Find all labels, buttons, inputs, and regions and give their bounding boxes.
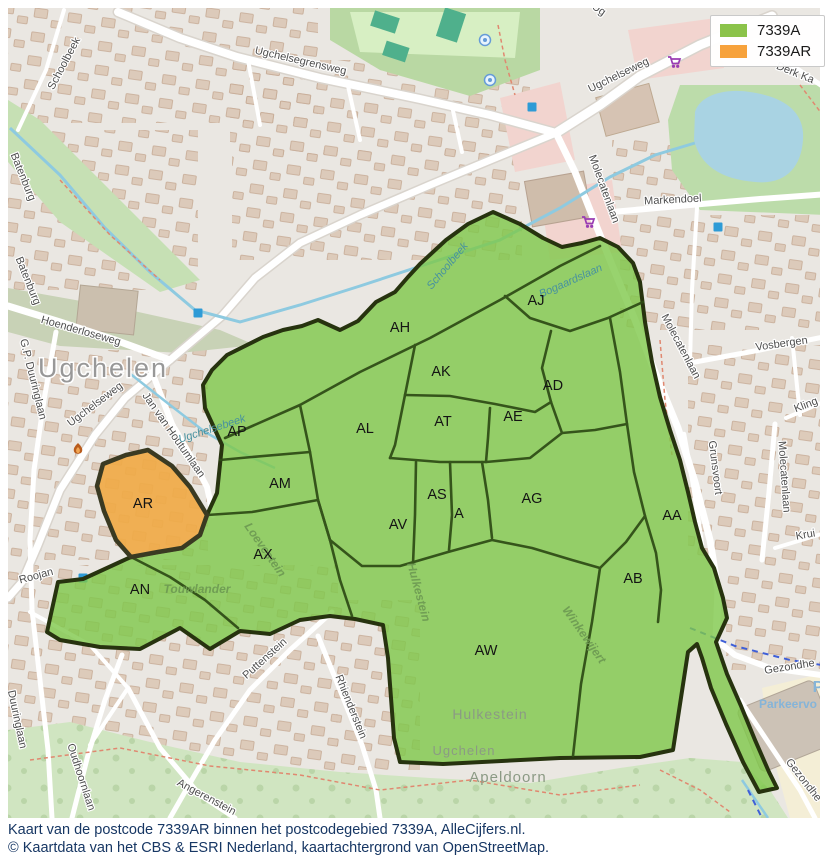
caption-line-2: © Kaartdata van het CBS & ESRI Nederland… — [8, 839, 828, 857]
playground-icon — [485, 75, 496, 86]
region-label-ah: AH — [390, 320, 410, 336]
region-label-aw: AW — [475, 643, 498, 659]
region-label-ar: AR — [133, 496, 153, 512]
parking-square-icon — [528, 103, 537, 112]
town-label-ugchelen: Ugchelen — [38, 353, 168, 383]
map-canvas: UgchelenSchoolbeekBatenburgBatenburgUgch… — [0, 0, 828, 818]
legend-label-7339a: 7339A — [757, 23, 800, 38]
area-label-hulkestein: Hulkestein — [452, 706, 527, 722]
region-label-an: AN — [130, 582, 150, 598]
map-caption: Kaart van de postcode 7339AR binnen het … — [0, 818, 828, 861]
playground-icon — [480, 35, 491, 46]
region-label-as: AS — [427, 487, 446, 503]
area-label-apeldoorn: Apeldoorn — [469, 769, 546, 786]
area-label-ugchelen: Ugchelen — [433, 743, 496, 758]
region-label-al: AL — [356, 421, 374, 437]
caption-line-1: Kaart van de postcode 7339AR binnen het … — [8, 821, 828, 839]
legend-item-7339ar: 7339AR — [720, 44, 815, 59]
region-label-ap: AP — [227, 424, 246, 440]
region-label-av: AV — [389, 517, 408, 533]
region-label-aa: AA — [662, 508, 682, 524]
region-label-ad: AD — [543, 378, 563, 394]
region-label-ab: AB — [623, 571, 642, 587]
region-label-ak: AK — [431, 364, 451, 380]
region-label-ae: AE — [503, 409, 523, 425]
legend-swatch-7339ar — [720, 45, 747, 58]
legend-item-7339a: 7339A — [720, 23, 815, 38]
parking-square-icon — [194, 309, 203, 318]
region-label-aj: AJ — [528, 293, 545, 309]
poi-label-p: P — [813, 679, 824, 696]
parking-square-icon — [714, 223, 723, 232]
park-label-touwlander: Touwlander — [164, 582, 232, 596]
poi-label-parkeervo: Parkeervo — [759, 697, 817, 711]
region-label-at: AT — [434, 414, 452, 430]
region-label-am: AM — [269, 476, 291, 492]
region-label-ag: AG — [522, 491, 543, 507]
map-legend: 7339A 7339AR — [710, 15, 825, 67]
region-label-a: A — [454, 506, 464, 522]
region-label-ax: AX — [253, 547, 273, 563]
legend-swatch-7339a — [720, 24, 747, 37]
legend-label-7339ar: 7339AR — [757, 44, 811, 59]
